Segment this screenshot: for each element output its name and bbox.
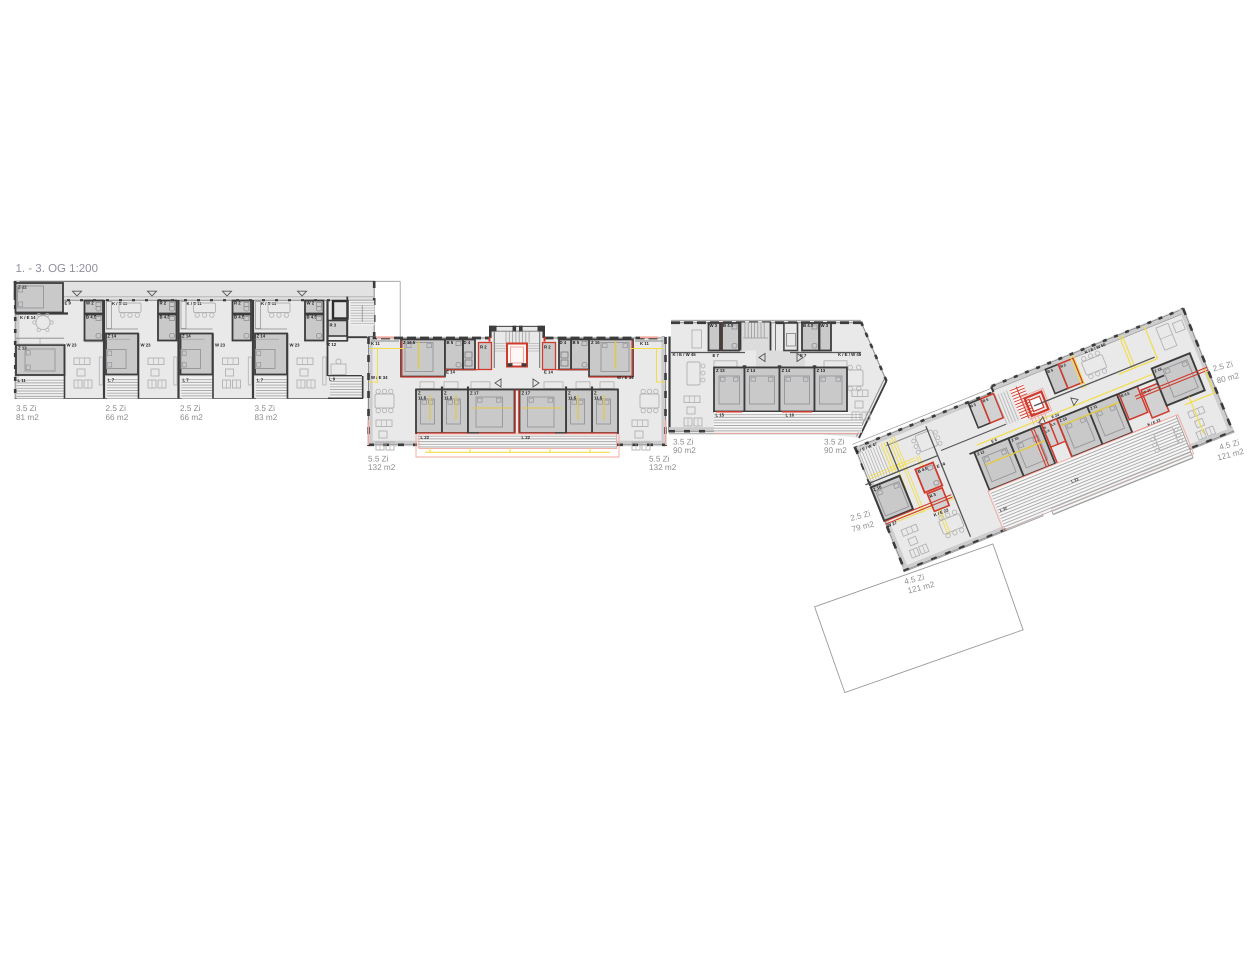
svg-text:D 4: D 4	[464, 340, 471, 345]
svg-text:W 3: W 3	[710, 323, 718, 328]
svg-text:Z 12: Z 12	[18, 285, 27, 290]
svg-text:3.5 Zi: 3.5 Zi	[16, 404, 37, 413]
svg-text:W / E 34: W / E 34	[617, 375, 634, 380]
svg-text:K / E / W 45: K / E / W 45	[673, 352, 697, 357]
svg-text:L 7: L 7	[183, 378, 190, 383]
svg-text:L 22: L 22	[421, 435, 430, 440]
svg-text:L 11: L 11	[18, 378, 27, 383]
svg-text:B 4.5: B 4.5	[86, 315, 97, 320]
svg-text:R 2: R 2	[480, 345, 487, 350]
svg-text:Z 14: Z 14	[747, 368, 756, 373]
svg-text:L 16: L 16	[786, 413, 795, 418]
svg-text:L 22: L 22	[522, 435, 531, 440]
svg-text:E 14: E 14	[544, 370, 553, 375]
svg-text:66 m2: 66 m2	[106, 413, 129, 422]
svg-text:B 4.5: B 4.5	[307, 315, 318, 320]
svg-text:81 m2: 81 m2	[16, 413, 39, 422]
svg-text:B 4.5: B 4.5	[160, 315, 171, 320]
svg-text:Z 14: Z 14	[782, 368, 791, 373]
svg-text:11.5: 11.5	[418, 396, 427, 401]
svg-text:2.5 Zi: 2.5 Zi	[1212, 360, 1234, 374]
svg-text:R 3: R 3	[330, 323, 337, 328]
svg-text:W 23: W 23	[290, 343, 301, 348]
svg-text:K 11: K 11	[371, 341, 380, 346]
svg-text:80 m2: 80 m2	[1216, 371, 1241, 386]
svg-text:11.5: 11.5	[444, 396, 453, 401]
svg-text:132 m2: 132 m2	[368, 463, 396, 472]
svg-text:Z 13: Z 13	[716, 368, 725, 373]
svg-text:R 2: R 2	[234, 301, 241, 306]
svg-text:3.5 Zi: 3.5 Zi	[824, 438, 845, 447]
svg-text:2.5 Zi: 2.5 Zi	[106, 404, 127, 413]
svg-text:5.5 Zi: 5.5 Zi	[368, 455, 389, 464]
svg-text:83 m2: 83 m2	[255, 413, 278, 422]
svg-text:L 7: L 7	[108, 378, 115, 383]
svg-text:Z 17: Z 17	[522, 391, 531, 396]
svg-text:W / E 34: W / E 34	[371, 375, 388, 380]
svg-text:K / E / W 45: K / E / W 45	[838, 352, 862, 357]
svg-text:Z 16.5: Z 16.5	[403, 340, 416, 345]
svg-text:L 15: L 15	[716, 413, 725, 418]
svg-text:3.5 Zi: 3.5 Zi	[255, 404, 276, 413]
svg-text:W 23: W 23	[67, 343, 78, 348]
svg-text:90 m2: 90 m2	[824, 446, 847, 455]
svg-text:11.5: 11.5	[568, 396, 577, 401]
svg-text:K 11: K 11	[640, 341, 649, 346]
svg-text:B 5: B 5	[447, 340, 454, 345]
svg-text:Z 13: Z 13	[18, 346, 27, 351]
svg-text:W 2: W 2	[307, 301, 315, 306]
svg-text:L 9: L 9	[329, 377, 336, 382]
svg-text:L 7: L 7	[257, 378, 264, 383]
svg-text:D 4: D 4	[560, 340, 567, 345]
svg-text:R 2: R 2	[544, 345, 551, 350]
svg-text:W 23: W 23	[141, 343, 152, 348]
svg-text:90 m2: 90 m2	[673, 446, 696, 455]
svg-text:E 7: E 7	[800, 353, 807, 358]
svg-text:5.5 Zi: 5.5 Zi	[649, 455, 670, 464]
svg-text:K / E 14: K / E 14	[20, 315, 36, 320]
svg-text:11.5: 11.5	[594, 396, 603, 401]
svg-text:R 2: R 2	[160, 301, 167, 306]
svg-text:3.5 Zi: 3.5 Zi	[673, 438, 694, 447]
svg-text:E 9: E 9	[65, 301, 72, 306]
svg-text:W 23: W 23	[215, 343, 226, 348]
svg-text:132 m2: 132 m2	[649, 463, 677, 472]
svg-text:Z 14: Z 14	[108, 334, 117, 339]
svg-text:Z 14: Z 14	[257, 334, 266, 339]
svg-text:1. - 3. OG 1:200: 1. - 3. OG 1:200	[16, 263, 98, 275]
svg-text:2.5 Zi: 2.5 Zi	[180, 404, 201, 413]
svg-text:B 5: B 5	[573, 340, 580, 345]
svg-text:E 7: E 7	[713, 353, 720, 358]
svg-text:Z 13: Z 13	[817, 368, 826, 373]
svg-text:B 4.5: B 4.5	[234, 315, 245, 320]
svg-text:Z 17: Z 17	[470, 391, 479, 396]
svg-text:Z 16: Z 16	[591, 340, 600, 345]
svg-text:Z 14: Z 14	[182, 334, 191, 339]
svg-text:Z 12: Z 12	[328, 342, 337, 347]
svg-text:W 3: W 3	[821, 323, 829, 328]
svg-text:W 2: W 2	[86, 301, 94, 306]
svg-text:66 m2: 66 m2	[180, 413, 203, 422]
